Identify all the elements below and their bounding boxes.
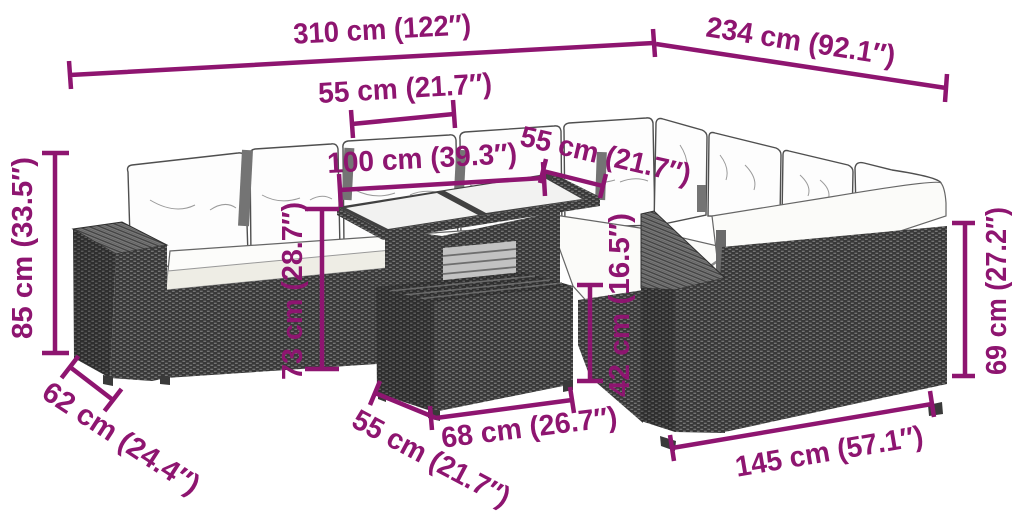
svg-text:85 cm (33.5″): 85 cm (33.5″): [7, 157, 39, 339]
svg-text:69 cm (27.2″): 69 cm (27.2″): [981, 207, 1013, 375]
svg-text:42 cm (16.5″): 42 cm (16.5″): [604, 213, 636, 397]
svg-text:73 cm (28.7″): 73 cm (28.7″): [277, 202, 309, 380]
